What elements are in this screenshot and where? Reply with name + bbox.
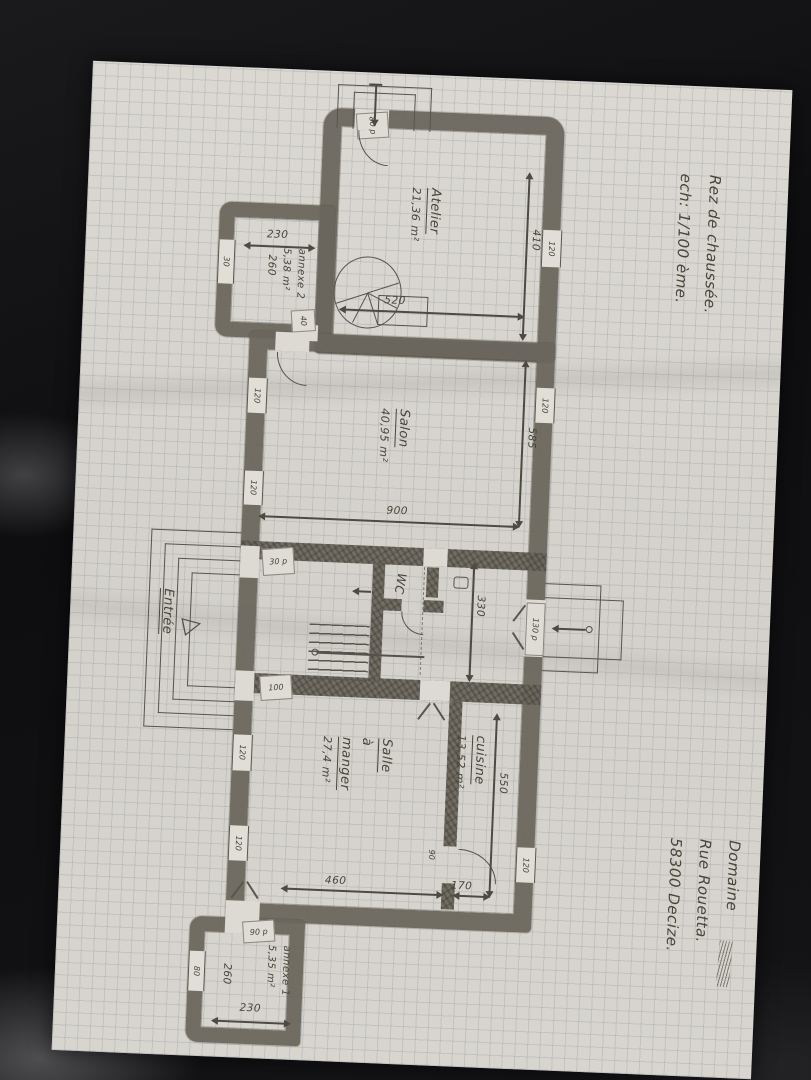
cuisine-right-window-label: 120 [521, 857, 531, 873]
address-line3: 58300 Decize. [656, 837, 690, 952]
dim-dining-width: 460 [325, 874, 347, 887]
address-line1: Domaine [715, 840, 749, 955]
hall-right-door-label: 130 p [530, 618, 540, 641]
dim-annexe1-depth: 260 [220, 963, 233, 985]
salon-area: 40,95 m² [374, 408, 393, 463]
hall-upper-door-tag: 30 p [261, 547, 295, 576]
salon-left-window-2: 120 [243, 470, 264, 505]
plan-title: Rez de chaussée. [694, 174, 729, 314]
salon-label: Salon 40,95 m² [374, 408, 413, 464]
dim-salon-width: 900 [386, 504, 408, 517]
dining-left-window-1-label: 120 [237, 745, 247, 761]
hall-upper-door-label: 30 p [269, 556, 287, 566]
scratched-out-word [716, 940, 733, 987]
hall-lower-door-tag: 100 [259, 674, 293, 701]
salle-name-line3: manger [334, 737, 356, 791]
wc-fixture [453, 576, 468, 589]
address-line2: Rue Rouetta. [685, 838, 719, 953]
dim-salon-depth: 585 [525, 427, 538, 449]
hall-lower-door-gap [234, 670, 254, 701]
wc-right-wall-stub [426, 567, 439, 597]
annexe2-name: annexe 2 [292, 248, 309, 299]
dim-hall-depth: 330 [474, 595, 487, 617]
dim-annexe2-width: 230 [267, 228, 289, 241]
annexe1-label: annexe 1 5,35 m² [262, 945, 294, 997]
cuisine-name: cuisine [468, 735, 490, 790]
atelier-area: 21,36 m² [406, 187, 425, 242]
annexe1-window: 80 [187, 951, 206, 992]
dim-atelier-width: 520 [384, 294, 406, 307]
annexe1-window-label: 80 [192, 966, 201, 977]
salle-area: 27,4 m² [317, 736, 336, 790]
annexe2-door-tag: 40 [291, 309, 316, 332]
salon-hall-opening-gap [423, 548, 448, 567]
salle-name-line1: Salle [374, 738, 396, 792]
cuisine-label: cuisine 13,52 m² [451, 734, 490, 790]
cuisine-right-window: 120 [515, 847, 536, 883]
plan-scale: ech: 1/100 ème. [665, 173, 700, 313]
salon-left-window-1: 120 [246, 378, 267, 414]
atelier-window-label: 120 [547, 241, 557, 257]
entree-label: Entrée [159, 588, 176, 634]
dining-left-window-2: 120 [228, 825, 249, 861]
annexe2-window-label: 30 [222, 256, 231, 267]
atelier-label: Atelier 21,36 m² [406, 187, 445, 243]
hall-upper-door-gap [240, 545, 260, 578]
plan-title-block: Rez de chaussée. ech: 1/100 ème. [665, 173, 729, 314]
spiral-staircase-step-1 [367, 283, 399, 294]
dining-left-window-1: 120 [231, 734, 252, 771]
annexe2-window: 30 [217, 239, 236, 284]
dim-annexe1-width: 230 [239, 1002, 261, 1015]
salle-name-line2: à [354, 737, 376, 791]
annexe1-door-label: 90 p [250, 926, 268, 936]
salle-a-manger-label: Salle à manger 27,4 m² [317, 736, 397, 793]
salon-left-window-1-label: 120 [252, 388, 262, 404]
dim-cuisine-width: 170 [451, 879, 473, 892]
salon-right-window: 120 [534, 388, 555, 424]
annexe2-label: annexe 2 5,38 m² [277, 248, 309, 300]
graph-paper-sheet: 120 120 120 120 120 120 120 30 80 80 p 4… [52, 61, 793, 1079]
atelier-entry-step-inner [352, 92, 415, 132]
dining-left-window-2-label: 120 [234, 835, 244, 851]
hall-direction-arrow [354, 590, 371, 592]
dim-dining-depth: 550 [497, 772, 510, 794]
cuisine-door-label: 90 [427, 849, 436, 860]
salon-right-window-label: 120 [540, 398, 550, 414]
hall-dining-door-gap [420, 680, 451, 701]
address-block: Domaine Rue Rouetta. 58300 Decize. [656, 837, 748, 955]
wc-bottom-wall-right [423, 600, 443, 613]
atelier-name: Atelier [423, 188, 445, 243]
dim-atelier-depth: 410 [529, 229, 542, 251]
annexe2-door-label: 40 [299, 315, 309, 326]
annexe1-name: annexe 1 [277, 945, 294, 996]
atelier-window: 120 [541, 230, 563, 268]
annexe1-door-tag: 90 p [242, 919, 275, 943]
wc-bottom-wall-left [383, 598, 401, 611]
dim-annexe2-depth: 260 [265, 254, 278, 276]
photo-of-floor-plan: 120 120 120 120 120 120 120 30 80 80 p 4… [0, 0, 811, 1080]
salon-left-window-2-label: 120 [248, 480, 258, 496]
hall-lower-door-label: 100 [268, 683, 284, 693]
cuisine-area: 13,52 m² [451, 734, 470, 789]
salon-name: Salon [392, 409, 414, 464]
